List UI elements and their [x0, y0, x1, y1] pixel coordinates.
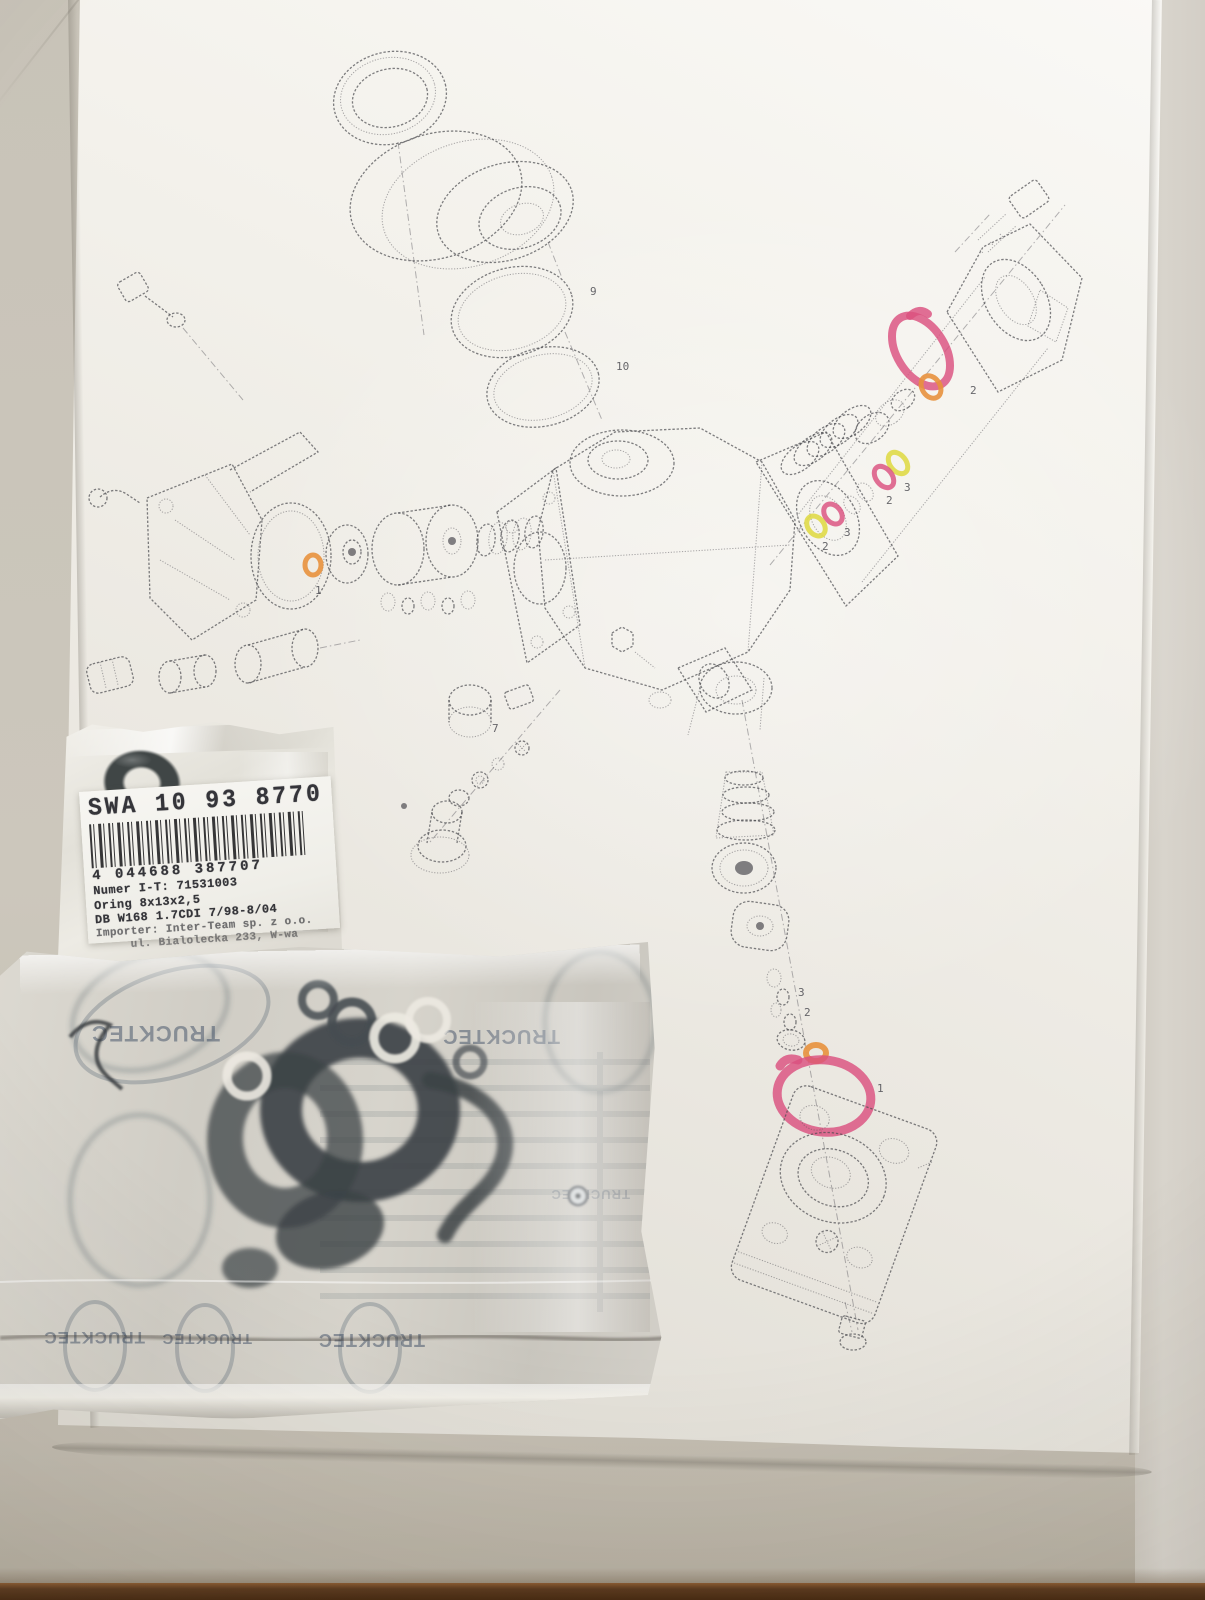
callout-number: 3 — [798, 986, 805, 999]
callout-number: 2 — [886, 494, 893, 507]
callout-number: 1 — [315, 584, 322, 597]
table-edge-shadow — [0, 1568, 1205, 1583]
left-parts-chain: 1 — [85, 432, 545, 695]
seal-kit-bag: TRUCKTEC TRUCKTEC TRUCKTEC TRUCKTEC TRUC… — [0, 942, 668, 1424]
callout-number: 2 — [970, 384, 977, 397]
photo-of-parts-and-diagram: 9 10 — [0, 0, 1205, 1600]
callout-number: 2 — [804, 1006, 811, 1019]
orange-highlight-ring — [305, 555, 321, 575]
callout-number: 3 — [844, 526, 851, 539]
plug — [85, 655, 135, 695]
oring-highlight — [112, 752, 152, 768]
small-bolt — [116, 271, 150, 303]
center-bottom-chain: 7 — [401, 627, 752, 873]
gear-housing — [497, 428, 898, 735]
hex-bolt — [1008, 179, 1051, 220]
valve-shaft-assembly: 2 2 3 2 3 — [770, 179, 1082, 582]
callout-number: 10 — [616, 360, 629, 373]
pink-highlight-oring — [772, 1054, 875, 1138]
callout-number: 3 — [904, 481, 911, 494]
callout-number: 1 — [877, 1082, 884, 1095]
part-label-sticker: SWA 10 93 8770 4 044688 387707 Numer I-T… — [79, 776, 340, 944]
wood-table-edge — [0, 1583, 1205, 1600]
large-oring-pair: 9 10 — [440, 253, 629, 439]
callout-number: 7 — [492, 722, 499, 735]
pump-cover-group — [116, 40, 586, 400]
callout-number: 2 — [822, 540, 829, 553]
white-oring — [409, 1001, 447, 1039]
valve-cover-plate — [727, 1082, 940, 1328]
bag-sheen — [470, 1002, 650, 1332]
large-rubber-gasket — [260, 1018, 460, 1202]
lower-valve-chain: 3 2 1 — [712, 700, 941, 1350]
callout-number: 9 — [590, 285, 597, 298]
